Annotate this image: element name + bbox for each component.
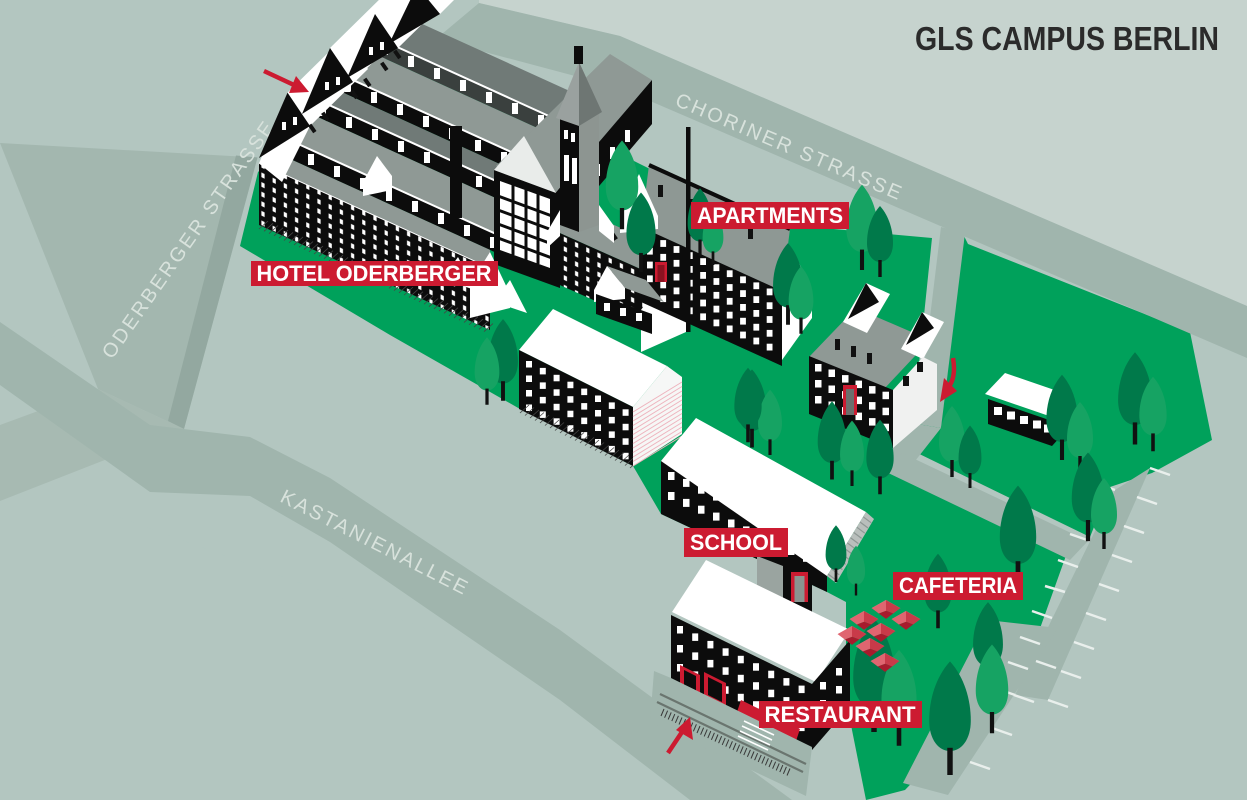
- svg-text:RESTAURANT: RESTAURANT: [765, 702, 917, 727]
- svg-text:APARTMENTS: APARTMENTS: [697, 203, 843, 228]
- svg-text:SCHOOL: SCHOOL: [690, 530, 782, 555]
- svg-text:GLS CAMPUS BERLIN: GLS CAMPUS BERLIN: [915, 20, 1219, 57]
- svg-text:HOTEL ODERBERGER: HOTEL ODERBERGER: [257, 261, 492, 286]
- svg-text:CAFETERIA: CAFETERIA: [899, 573, 1017, 598]
